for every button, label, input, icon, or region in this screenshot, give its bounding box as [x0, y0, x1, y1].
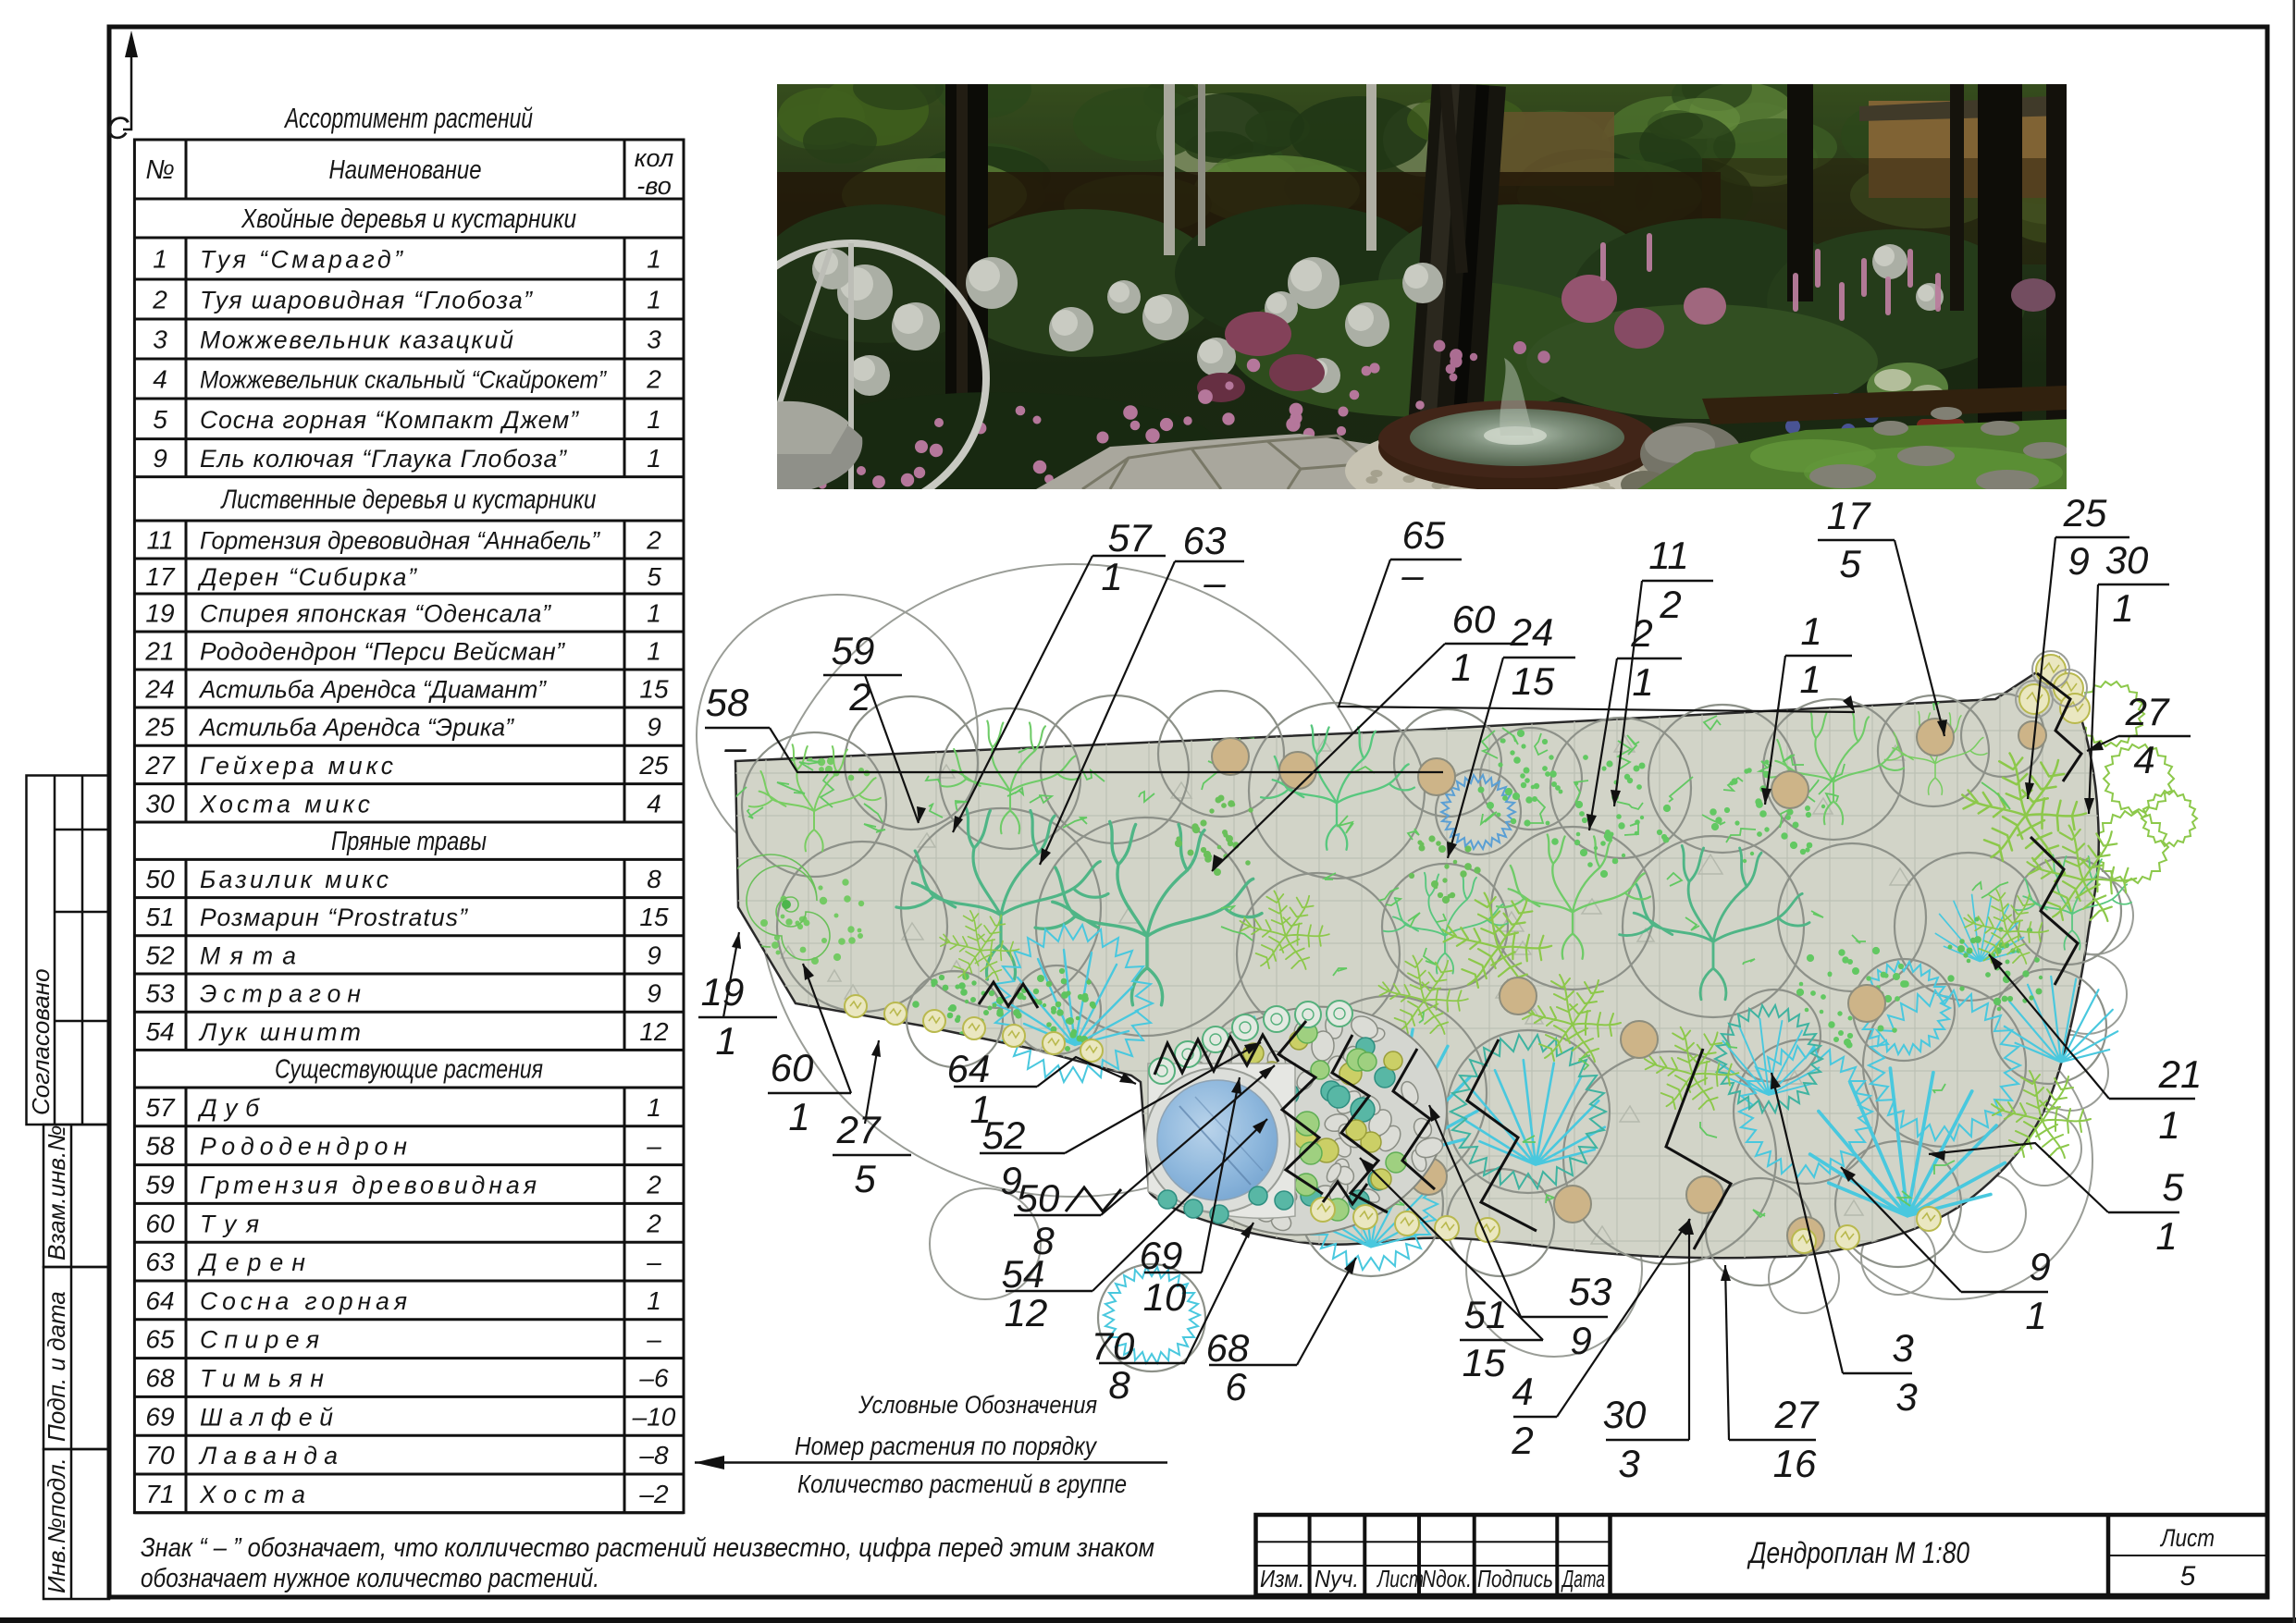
svg-text:Хоста микс: Хоста микс: [199, 790, 370, 818]
svg-text:9: 9: [647, 941, 661, 969]
svg-text:Взам.инв.№: Взам.инв.№: [43, 1125, 70, 1260]
svg-text:4: 4: [647, 789, 661, 818]
svg-text:9: 9: [647, 713, 661, 742]
svg-text:27: 27: [144, 751, 176, 780]
svg-text:9: 9: [153, 444, 167, 473]
svg-text:2: 2: [646, 365, 661, 394]
svg-text:Лиственные деревья и кустарник: Лиственные деревья и кустарники: [220, 485, 597, 514]
svg-text:Существующие растения: Существующие растения: [275, 1055, 543, 1085]
svg-text:2: 2: [646, 1209, 661, 1237]
svg-text:69: 69: [145, 1402, 174, 1431]
svg-text:Условные Обозначения: Условные Обозначения: [858, 1391, 1097, 1419]
svg-text:27: 27: [2125, 690, 2170, 733]
svg-text:27: 27: [836, 1108, 882, 1151]
svg-text:19: 19: [145, 599, 174, 628]
svg-text:24: 24: [144, 675, 174, 704]
svg-text:Гортензия древовидная “Аннабел: Гортензия древовидная “Аннабель”: [200, 527, 600, 555]
svg-text:19: 19: [701, 970, 745, 1014]
svg-text:30: 30: [145, 789, 175, 818]
svg-text:12: 12: [1005, 1291, 1048, 1334]
svg-text:1: 1: [647, 444, 661, 473]
svg-text:Дата: Дата: [1561, 1565, 1605, 1592]
svg-text:1: 1: [1101, 555, 1122, 598]
svg-text:10: 10: [1143, 1275, 1187, 1319]
svg-text:53: 53: [145, 979, 175, 1008]
svg-text:Nдок.: Nдок.: [1422, 1565, 1472, 1592]
svg-text:64: 64: [145, 1286, 174, 1315]
svg-text:27: 27: [1774, 1393, 1820, 1436]
svg-text:50: 50: [145, 865, 175, 893]
svg-text:3: 3: [647, 326, 661, 354]
svg-text:4: 4: [2133, 738, 2154, 781]
svg-text:52: 52: [982, 1113, 1026, 1157]
svg-text:Хвойные деревья и кустарники: Хвойные деревья и кустарники: [241, 204, 576, 234]
svg-text:17: 17: [145, 562, 176, 591]
svg-text:5: 5: [647, 562, 661, 591]
svg-text:–8: –8: [638, 1441, 669, 1469]
svg-text:1: 1: [2112, 586, 2133, 630]
svg-text:1: 1: [647, 1286, 661, 1315]
svg-text:1: 1: [1799, 658, 1821, 701]
svg-text:3: 3: [1618, 1442, 1639, 1485]
svg-text:1: 1: [1632, 660, 1653, 704]
svg-text:15: 15: [1512, 659, 1555, 703]
svg-text:53: 53: [1569, 1270, 1612, 1313]
svg-text:1: 1: [2155, 1214, 2177, 1258]
svg-text:-во: -во: [636, 172, 672, 200]
svg-text:15: 15: [639, 903, 669, 931]
svg-text:30: 30: [1603, 1393, 1647, 1436]
svg-text:25: 25: [638, 751, 669, 780]
svg-text:1: 1: [2158, 1103, 2179, 1147]
svg-text:1: 1: [153, 245, 167, 274]
svg-text:70: 70: [1092, 1324, 1135, 1368]
svg-text:Дендроплан М 1:80: Дендроплан М 1:80: [1747, 1536, 1970, 1569]
svg-text:Номер растения по порядку: Номер растения по порядку: [795, 1432, 1098, 1460]
svg-text:–6: –6: [638, 1364, 669, 1393]
svg-text:С: С: [106, 111, 130, 146]
svg-text:59: 59: [832, 629, 875, 672]
svg-text:Ассортимент растений: Ассортимент растений: [284, 102, 533, 134]
svg-text:1: 1: [647, 286, 661, 314]
svg-text:68: 68: [145, 1364, 175, 1393]
svg-text:Сосна горная “Компакт Джем”: Сосна горная “Компакт Джем”: [200, 406, 579, 434]
svg-text:3: 3: [153, 326, 167, 354]
svg-text:Туя: Туя: [200, 1210, 259, 1237]
svg-text:Дерен “Сибирка”: Дерен “Сибирка”: [197, 563, 417, 591]
svg-text:51: 51: [1464, 1293, 1508, 1336]
svg-text:–: –: [646, 1325, 661, 1354]
svg-text:2: 2: [646, 1171, 661, 1199]
svg-text:1: 1: [1800, 609, 1821, 653]
svg-text:2: 2: [1659, 583, 1681, 626]
svg-text:15: 15: [1463, 1341, 1506, 1384]
svg-text:9: 9: [647, 979, 661, 1008]
svg-text:59: 59: [145, 1171, 174, 1199]
svg-text:5: 5: [2180, 1561, 2196, 1592]
svg-text:Подп. и дата: Подп. и дата: [43, 1291, 70, 1442]
svg-text:Дуб: Дуб: [197, 1094, 260, 1122]
svg-text:25: 25: [2063, 491, 2107, 535]
svg-text:15: 15: [639, 675, 669, 704]
svg-text:9: 9: [2068, 539, 2089, 583]
svg-text:65: 65: [1402, 513, 1446, 557]
svg-text:Знак “ – ” обозначает, что кол: Знак “ – ” обозначает, что колличество р…: [141, 1533, 1154, 1563]
svg-text:24: 24: [1510, 610, 1554, 654]
svg-text:1: 1: [647, 1093, 661, 1122]
svg-text:58: 58: [145, 1132, 175, 1161]
svg-text:65: 65: [145, 1325, 175, 1354]
svg-text:8: 8: [1108, 1363, 1130, 1407]
svg-text:Согласовано: Согласовано: [27, 968, 55, 1115]
svg-text:Астильба Арендса “Эрика”: Астильба Арендса “Эрика”: [198, 714, 514, 742]
svg-text:57: 57: [1108, 516, 1153, 559]
svg-text:21: 21: [2158, 1052, 2203, 1096]
svg-text:63: 63: [1183, 519, 1227, 562]
svg-text:57: 57: [145, 1093, 176, 1122]
svg-text:–: –: [646, 1132, 661, 1161]
svg-text:3: 3: [1892, 1326, 1913, 1370]
svg-text:50: 50: [1017, 1176, 1060, 1220]
svg-text:Лук шнитт: Лук шнитт: [198, 1018, 361, 1046]
svg-text:52: 52: [145, 941, 175, 969]
svg-text:Лист: Лист: [2159, 1524, 2215, 1552]
svg-text:60: 60: [771, 1046, 814, 1089]
svg-text:5: 5: [1839, 542, 1861, 585]
svg-text:51: 51: [145, 903, 174, 931]
svg-text:1: 1: [2025, 1294, 2046, 1337]
svg-text:60: 60: [1452, 597, 1496, 641]
svg-text:–: –: [1401, 553, 1424, 596]
svg-text:5: 5: [2162, 1165, 2184, 1209]
svg-text:2: 2: [646, 526, 661, 555]
svg-text:30: 30: [2105, 538, 2149, 582]
svg-text:17: 17: [1827, 494, 1871, 537]
svg-text:9: 9: [1570, 1319, 1591, 1362]
svg-text:60: 60: [145, 1209, 175, 1237]
svg-text:4: 4: [1512, 1370, 1533, 1413]
svg-text:16: 16: [1773, 1442, 1817, 1485]
svg-text:8: 8: [647, 865, 661, 893]
svg-text:11: 11: [1648, 534, 1689, 577]
svg-text:1: 1: [1450, 646, 1472, 689]
svg-text:1: 1: [647, 599, 661, 628]
svg-text:Nуч.: Nуч.: [1315, 1565, 1359, 1592]
svg-text:25: 25: [144, 713, 175, 742]
svg-text:Ель колючая “Глаука Глобоза”: Ель колючая “Глаука Глобоза”: [200, 445, 567, 473]
svg-text:Туя шаровидная “Глобоза”: Туя шаровидная “Глобоза”: [200, 287, 533, 314]
svg-text:54: 54: [145, 1017, 174, 1046]
svg-text:–10: –10: [632, 1402, 676, 1431]
svg-text:9: 9: [2029, 1245, 2050, 1288]
svg-text:64: 64: [947, 1047, 991, 1090]
svg-text:2: 2: [152, 286, 167, 314]
svg-text:–2: –2: [638, 1480, 669, 1508]
svg-text:Наименование: Наименование: [329, 155, 482, 185]
svg-text:2: 2: [848, 675, 870, 719]
svg-text:Спирея японская “Оденсала”: Спирея японская “Оденсала”: [200, 600, 551, 628]
svg-text:70: 70: [145, 1441, 175, 1469]
svg-text:Пряные травы: Пряные травы: [331, 827, 487, 856]
svg-text:21: 21: [144, 637, 174, 666]
svg-text:3: 3: [1895, 1375, 1917, 1419]
svg-text:Астильба Арендса “Диамант”: Астильба Арендса “Диамант”: [198, 676, 547, 704]
svg-text:1: 1: [647, 637, 661, 666]
svg-text:Рододендрон: Рододендрон: [200, 1133, 407, 1161]
svg-text:Можжевельник скальный “Скайрок: Можжевельник скальный “Скайрокет”: [200, 366, 607, 394]
svg-text:Количество растений в группе: Количество растений в группе: [797, 1469, 1127, 1498]
svg-text:63: 63: [145, 1248, 175, 1276]
svg-text:Эстрагон: Эстрагон: [200, 980, 361, 1008]
svg-text:2: 2: [1630, 611, 1652, 655]
svg-text:1: 1: [647, 405, 661, 434]
svg-text:5: 5: [854, 1157, 876, 1200]
svg-text:кол: кол: [635, 144, 673, 172]
svg-text:Подпись: Подпись: [1477, 1565, 1553, 1592]
svg-text:–: –: [1203, 560, 1226, 604]
svg-text:№: №: [145, 155, 174, 185]
svg-text:5: 5: [153, 405, 167, 434]
svg-text:58: 58: [706, 681, 749, 724]
svg-text:Розмарин “Prostratus”: Розмарин “Prostratus”: [200, 904, 468, 931]
svg-text:Инв.№подл.: Инв.№подл.: [43, 1457, 70, 1593]
svg-text:68: 68: [1206, 1326, 1250, 1370]
svg-text:12: 12: [639, 1017, 669, 1046]
svg-text:1: 1: [647, 245, 661, 274]
svg-text:–: –: [646, 1248, 661, 1276]
svg-text:Лист: Лист: [1376, 1565, 1424, 1592]
svg-text:1: 1: [715, 1019, 736, 1063]
svg-text:–: –: [723, 725, 747, 768]
svg-text:2: 2: [1511, 1419, 1533, 1462]
svg-text:6: 6: [1225, 1365, 1247, 1408]
svg-text:обозначает нужное количество р: обозначает нужное количество растений.: [141, 1564, 599, 1593]
svg-text:69: 69: [1140, 1234, 1183, 1277]
svg-text:Можжевельник казацкий: Можжевельник казацкий: [200, 326, 513, 354]
svg-text:Изм.: Изм.: [1260, 1565, 1304, 1592]
svg-text:1: 1: [788, 1095, 809, 1138]
svg-text:71: 71: [145, 1480, 174, 1508]
svg-text:54: 54: [1002, 1252, 1045, 1296]
svg-text:4: 4: [153, 365, 167, 394]
svg-text:Рододендрон “Перси Вейсман”: Рододендрон “Перси Вейсман”: [200, 638, 565, 666]
svg-text:11: 11: [146, 526, 173, 555]
